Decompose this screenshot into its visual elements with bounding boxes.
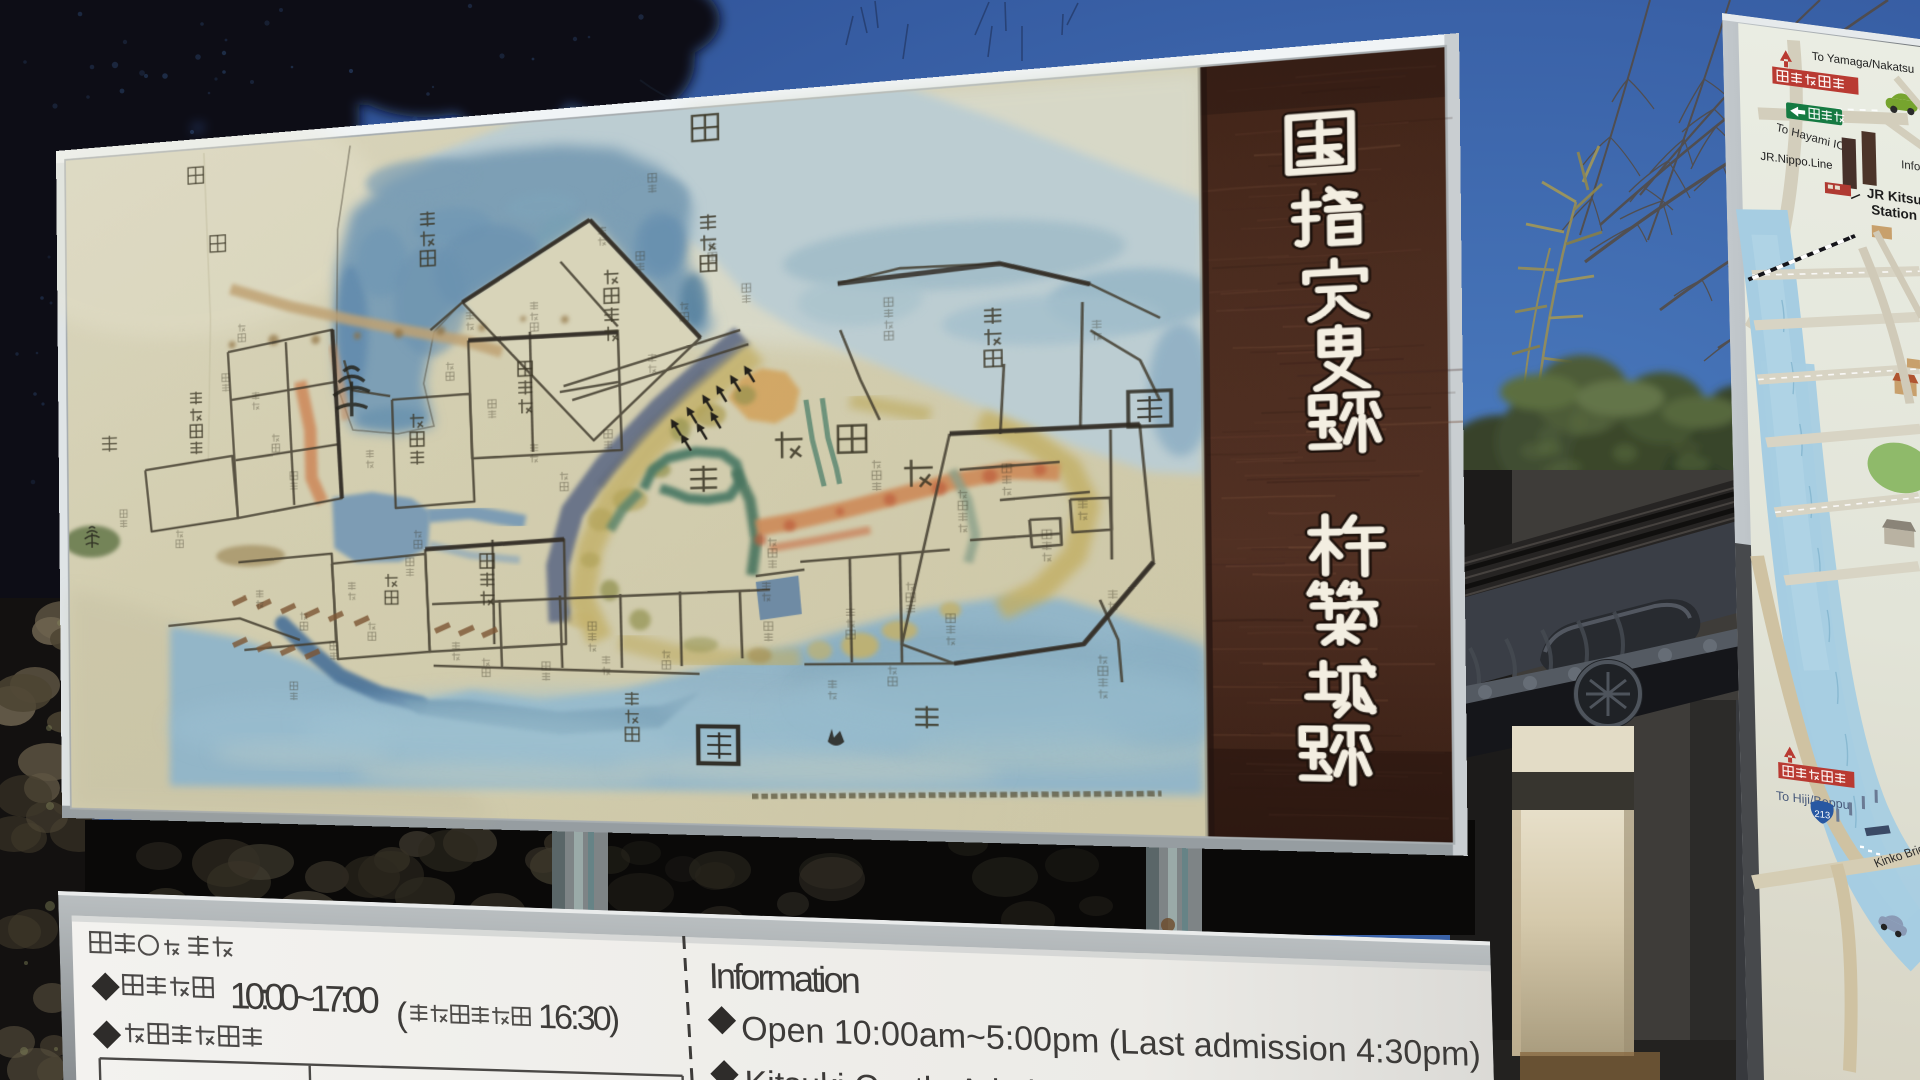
- svg-text:16:30): 16:30): [538, 998, 621, 1039]
- svg-text:(: (: [396, 996, 409, 1034]
- svg-text:Information: Information: [708, 955, 861, 1001]
- svg-text:213: 213: [1814, 809, 1830, 822]
- svg-text:10:00~17:00: 10:00~17:00: [229, 974, 380, 1021]
